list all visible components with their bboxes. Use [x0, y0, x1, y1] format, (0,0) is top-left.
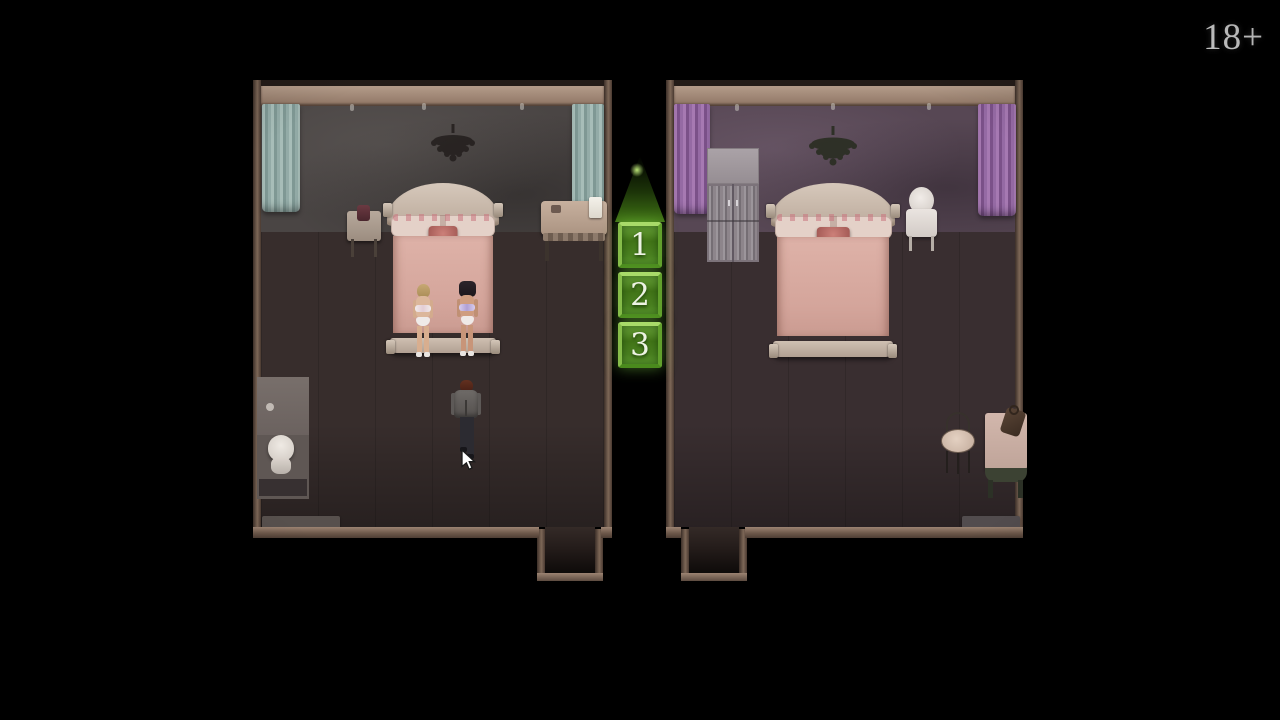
vanity-chair [905, 187, 939, 252]
left-room-bottom-wall [253, 527, 539, 538]
choice-button-2[interactable]: 2 [618, 272, 662, 318]
npc-dark-haired-woman[interactable] [455, 281, 479, 360]
sink-knob [266, 403, 274, 411]
bed-footboard [773, 341, 893, 357]
toilet-base [271, 457, 291, 474]
curtain-hook [520, 103, 524, 110]
choice-button-3[interactable]: 3 [618, 322, 662, 368]
bed-garland [777, 214, 889, 221]
age-rating-label: 18+ [1203, 16, 1264, 59]
bed-post [769, 344, 778, 358]
left-room-wall-right [604, 80, 612, 538]
small-desk-item [551, 205, 561, 213]
wardrobe-handle [736, 200, 738, 206]
panties [416, 317, 430, 326]
bed-post [386, 340, 395, 354]
game-viewport: 18+ [0, 0, 1280, 720]
wardrobe [707, 148, 759, 262]
right-room-wall-top-band [674, 86, 1015, 106]
mouse-cursor [461, 449, 478, 477]
bed [385, 183, 501, 353]
round-stool [938, 412, 978, 474]
paper-item [589, 197, 602, 218]
bed-footboard [390, 338, 497, 353]
bed-post [891, 204, 900, 218]
bed-post [383, 203, 392, 217]
dressing-table [985, 413, 1027, 498]
wardrobe-handle [728, 200, 730, 206]
red-box-item [357, 205, 370, 221]
right-room-bottom-wall [666, 527, 681, 538]
left-room-wall-top-band [261, 86, 604, 106]
right-room-bottom-wall [745, 527, 1023, 538]
writing-desk [541, 201, 607, 261]
curtain-hook [422, 103, 426, 110]
choice-glow-tip [630, 163, 644, 177]
purple-curtain-left [674, 104, 710, 214]
bed-post [766, 204, 775, 218]
bra [459, 304, 475, 311]
purple-curtain-right [978, 104, 1016, 216]
bra [415, 305, 431, 312]
choice-button-1[interactable]: 1 [618, 222, 662, 268]
right-room-wall-left [666, 80, 674, 538]
curtain-hook [927, 103, 931, 110]
dark-pants [460, 417, 467, 448]
panties [461, 316, 474, 325]
bed-post [491, 340, 500, 354]
teal-curtain-left [262, 104, 300, 212]
bed-garland [393, 214, 493, 221]
bed [768, 183, 898, 357]
curtain-hook [735, 104, 739, 111]
chandelier-decor [802, 126, 864, 178]
npc-blonde-woman[interactable] [412, 284, 434, 360]
bed-post [494, 203, 503, 217]
teal-curtain-right [572, 104, 604, 212]
bed-post [888, 344, 897, 358]
left-room-bottom-wall [601, 527, 612, 538]
curtain-hook [350, 104, 354, 111]
bed-blanket [777, 237, 889, 336]
curtain-hook [831, 103, 835, 110]
chandelier-decor [424, 124, 482, 174]
nightstand [347, 211, 381, 257]
toilet-nook [257, 377, 309, 499]
